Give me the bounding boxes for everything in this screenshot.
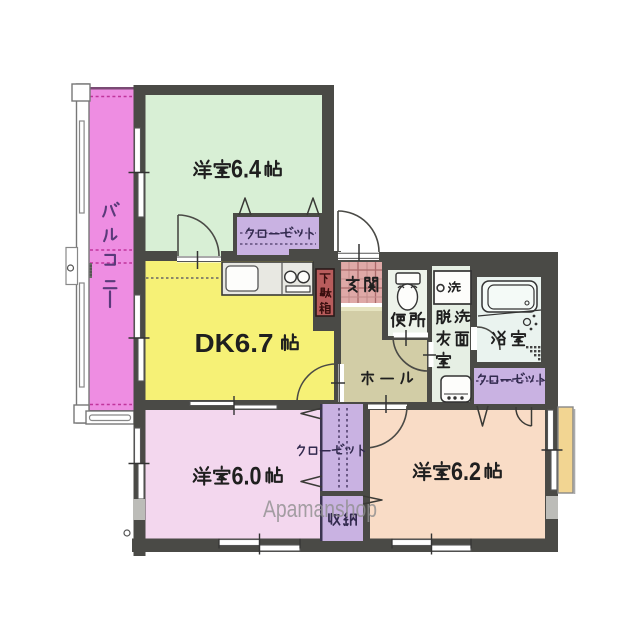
svg-text:Apamanshop: Apamanshop — [263, 496, 377, 523]
svg-text:6.4: 6.4 — [231, 156, 261, 184]
svg-text:DK6.7: DK6.7 — [195, 330, 274, 358]
svg-text:6.0: 6.0 — [232, 463, 262, 491]
svg-text:6.2: 6.2 — [451, 458, 481, 486]
